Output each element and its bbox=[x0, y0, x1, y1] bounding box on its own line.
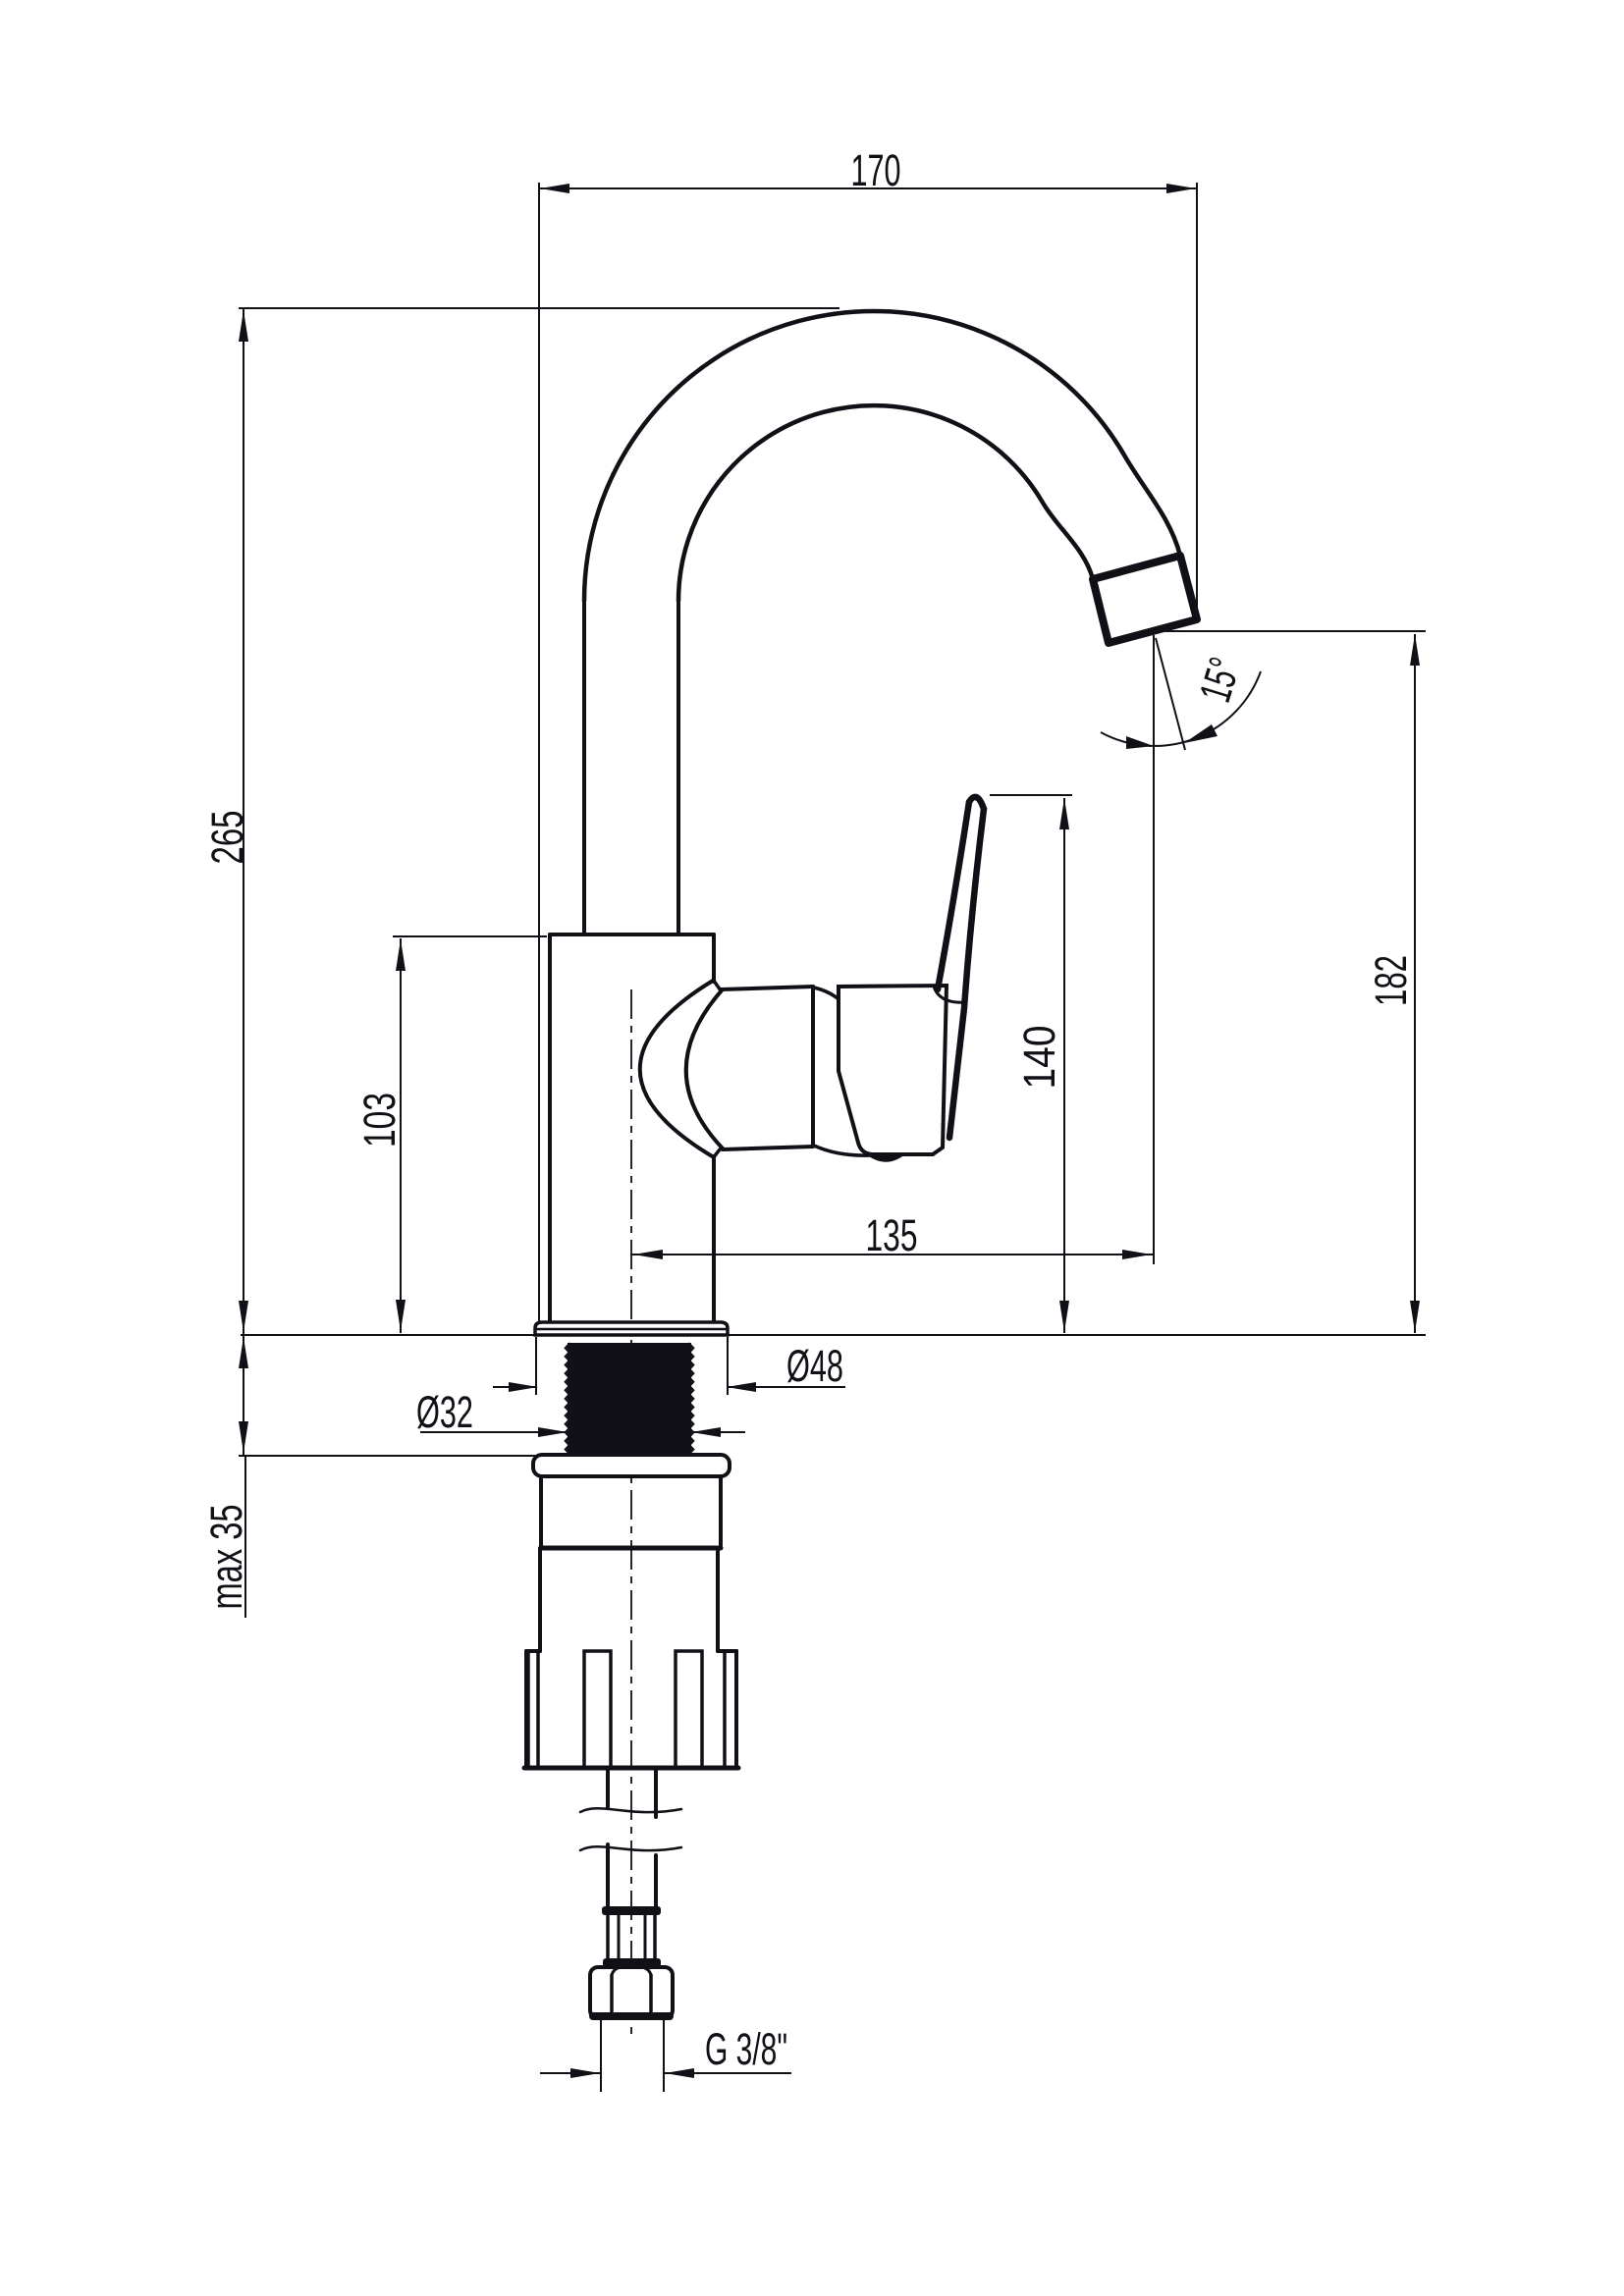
svg-text:140: 140 bbox=[1014, 1026, 1064, 1090]
svg-text:265: 265 bbox=[202, 811, 252, 865]
svg-text:135: 135 bbox=[866, 1210, 918, 1260]
svg-text:max 35: max 35 bbox=[201, 1505, 251, 1610]
svg-text:Ø48: Ø48 bbox=[786, 1341, 843, 1391]
svg-text:103: 103 bbox=[354, 1093, 405, 1148]
svg-text:170: 170 bbox=[851, 145, 901, 195]
svg-text:182: 182 bbox=[1366, 955, 1416, 1006]
svg-text:Ø32: Ø32 bbox=[416, 1387, 473, 1437]
svg-text:G 3/8": G 3/8" bbox=[705, 2024, 787, 2074]
